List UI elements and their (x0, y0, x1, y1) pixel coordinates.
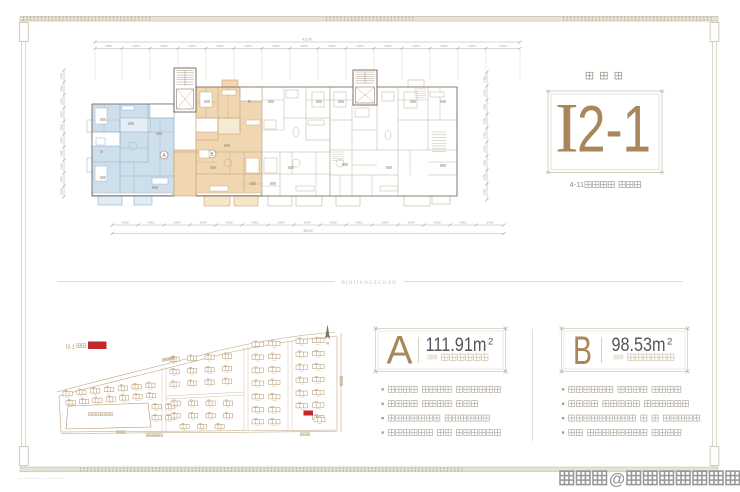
svg-text:3450: 3450 (357, 44, 364, 48)
svg-text:I2-1: I2-1 (66, 345, 75, 351)
svg-text:3450: 3450 (329, 44, 336, 48)
svg-text:111.91m: 111.91m (426, 335, 487, 356)
svg-text:3450: 3450 (60, 124, 64, 131)
svg-text:A: A (387, 329, 413, 373)
svg-text:3450: 3450 (252, 220, 259, 224)
svg-text:3450: 3450 (189, 44, 196, 48)
svg-text:4-11: 4-11 (570, 180, 585, 189)
svg-text:3450: 3450 (278, 220, 285, 224)
svg-text:3450: 3450 (482, 103, 486, 110)
svg-text:3450: 3450 (60, 188, 64, 195)
svg-text:BINJIANGZUOAN: BINJIANGZUOAN (342, 281, 398, 286)
svg-text:3450: 3450 (60, 150, 64, 157)
svg-text:3450: 3450 (434, 220, 441, 224)
svg-text:3450: 3450 (60, 137, 64, 144)
svg-text:3450: 3450 (304, 220, 311, 224)
svg-text:3450: 3450 (148, 220, 155, 224)
svg-text:3450: 3450 (226, 220, 233, 224)
svg-text:3450: 3450 (301, 44, 308, 48)
svg-text:3450: 3450 (60, 98, 64, 105)
svg-text:4200: 4200 (500, 44, 507, 48)
svg-text:3450: 3450 (482, 188, 486, 195)
svg-text:B: B (573, 329, 592, 373)
svg-text:3450: 3450 (482, 117, 486, 124)
svg-text:3450: 3450 (60, 111, 64, 118)
svg-text:3450: 3450 (122, 220, 129, 224)
svg-text:3450: 3450 (408, 220, 415, 224)
svg-text:2-1: 2-1 (577, 92, 651, 166)
svg-text:3450: 3450 (133, 44, 140, 48)
svg-text:3450: 3450 (385, 44, 392, 48)
svg-text:3450: 3450 (482, 159, 486, 166)
svg-text:3450: 3450 (161, 44, 168, 48)
svg-text:39200: 39200 (303, 229, 313, 233)
svg-text:3450: 3450 (482, 131, 486, 138)
svg-text:3450: 3450 (245, 44, 252, 48)
svg-text:3450: 3450 (330, 220, 337, 224)
svg-text:3300: 3300 (105, 44, 112, 48)
svg-text:3450: 3450 (356, 220, 363, 224)
svg-text:3450: 3450 (460, 220, 467, 224)
svg-text:3450: 3450 (174, 220, 181, 224)
svg-text:3450: 3450 (200, 220, 207, 224)
svg-text:3450: 3450 (60, 163, 64, 170)
svg-text:3450: 3450 (60, 176, 64, 183)
svg-text:3450: 3450 (482, 75, 486, 82)
svg-text:I: I (555, 90, 579, 168)
svg-text:2: 2 (667, 337, 672, 348)
svg-text:3450: 3450 (217, 44, 224, 48)
svg-text:98.53m: 98.53m (612, 335, 666, 356)
svg-text:3450: 3450 (469, 44, 476, 48)
svg-text:3450: 3450 (60, 85, 64, 92)
svg-text:3450: 3450 (60, 72, 64, 79)
svg-text:3450: 3450 (441, 44, 448, 48)
svg-text:3450: 3450 (487, 220, 494, 224)
svg-text:@: @ (609, 471, 625, 489)
svg-text:2: 2 (488, 337, 493, 348)
svg-text:3450: 3450 (482, 89, 486, 96)
svg-text:3450: 3450 (273, 44, 280, 48)
svg-text:3450: 3450 (482, 173, 486, 180)
svg-text:3450: 3450 (382, 220, 389, 224)
svg-text:41100: 41100 (302, 38, 311, 42)
svg-text:3450: 3450 (482, 145, 486, 152)
svg-text:3450: 3450 (413, 44, 420, 48)
